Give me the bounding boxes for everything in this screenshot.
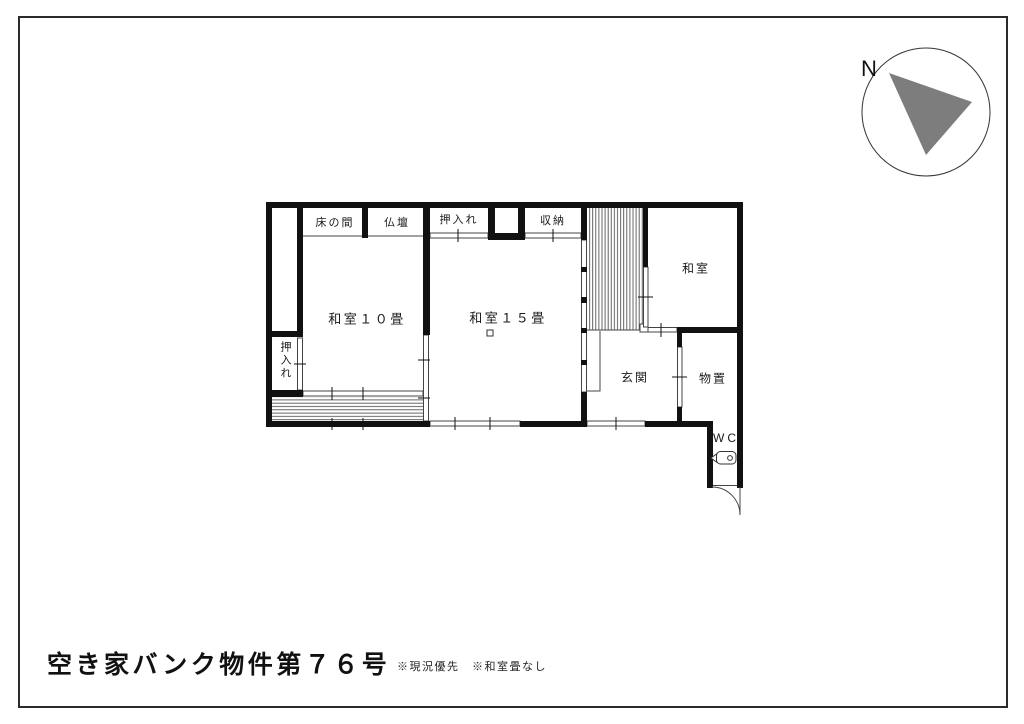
- toilet-icon: [711, 452, 736, 465]
- stairs-hatch: [587, 208, 648, 391]
- label-washitsu-10: 和室１０畳: [328, 309, 406, 328]
- door-swing-arc: [712, 487, 740, 515]
- compass-north-label: N: [861, 56, 877, 81]
- sliding-doors: [298, 233, 738, 486]
- north-arrow-icon: N: [861, 48, 990, 176]
- walls: [266, 202, 743, 488]
- note-genjou-yuusen: ※現況優先: [397, 658, 460, 674]
- label-butsudan: 仏壇: [384, 214, 410, 230]
- label-monooki: 物置: [699, 370, 727, 387]
- veranda-hatch: [272, 397, 428, 421]
- compass-needle: [889, 73, 972, 155]
- label-wc: WC: [713, 431, 739, 445]
- label-tokonoma: 床の間: [316, 214, 355, 230]
- label-washitsu-15: 和室１５畳: [469, 308, 547, 327]
- note-tatami-nashi: ※和室畳なし: [472, 658, 547, 674]
- label-oshiire-left: 押入れ: [277, 341, 293, 387]
- label-genkan: 玄関: [621, 369, 649, 386]
- floor-plan-drawing: N: [0, 0, 1024, 724]
- label-oshiire-top: 押入れ: [440, 211, 479, 227]
- label-washitsu-ne: 和室: [682, 260, 710, 277]
- label-shuno: 収納: [540, 212, 566, 228]
- room-marker-square: [487, 330, 493, 336]
- plan-title: 空き家バンク物件第７６号: [47, 645, 390, 681]
